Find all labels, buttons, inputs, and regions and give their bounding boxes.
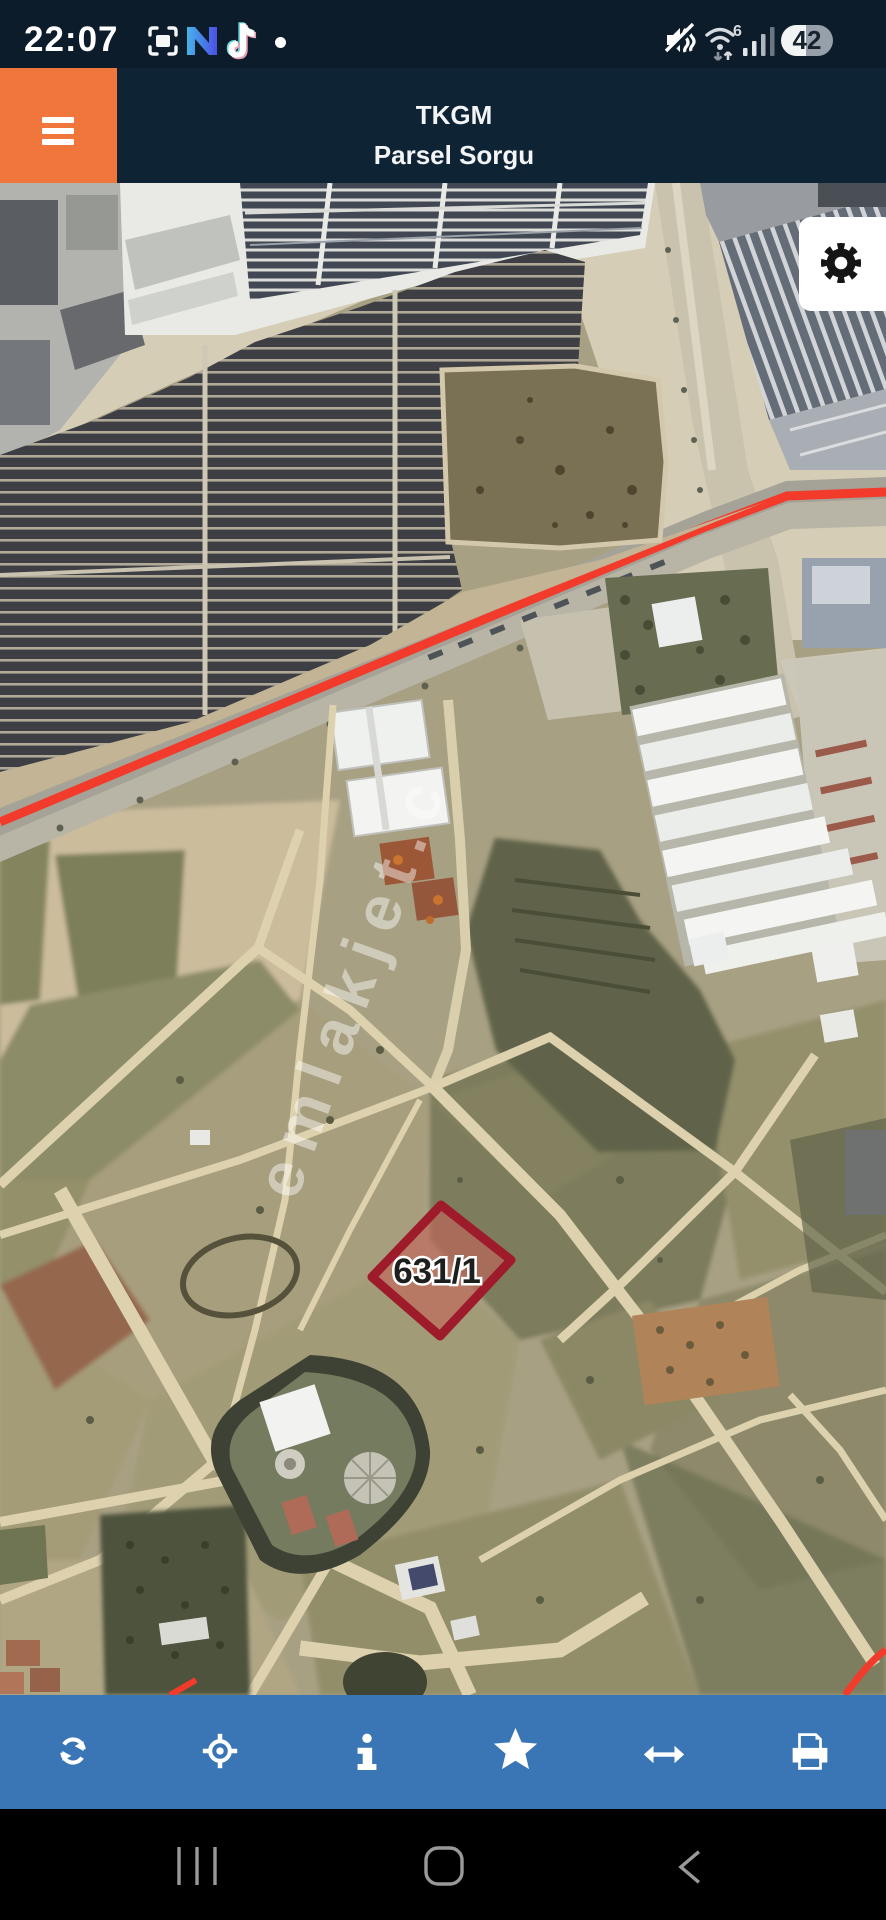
svg-text:6: 6 xyxy=(733,23,742,40)
svg-text:631/1: 631/1 xyxy=(393,1252,481,1291)
